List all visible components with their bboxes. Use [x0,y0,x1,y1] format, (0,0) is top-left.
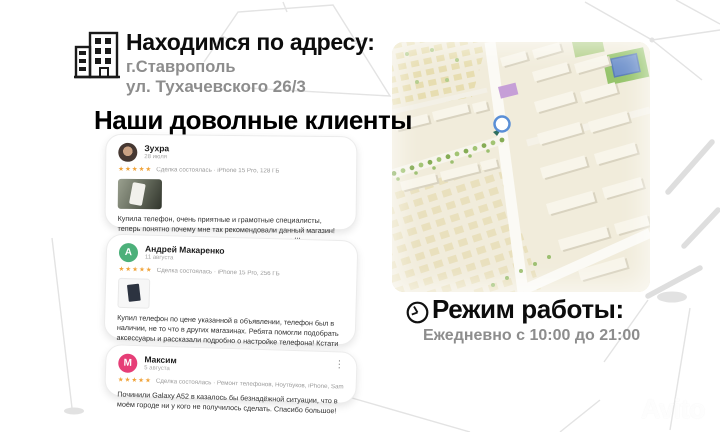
avatar: А [119,243,139,263]
clock-icon [406,301,429,324]
review-card-andrey[interactable]: А Андрей Макаренко 11 августа ★★★★★ Сдел… [104,234,359,346]
phone-box-shape [127,283,141,301]
review-card-zuhra[interactable]: Зухра 28 июля ★★★★★ Сделка состоялась · … [105,134,358,231]
deal-status: Сделка состоялась · iPhone 15 Pro, 128 Г… [156,167,279,174]
store-ad-banner: Находимся по адресу: г.Ставрополь ул. Ту… [0,0,720,432]
address-heading: Находимся по адресу: [126,30,375,55]
deal-status: Сделка состоялась · Ремонт телефонов, Но… [156,379,344,391]
reviews-heading: Наши доволные клиенты [94,105,412,136]
avito-watermark: Avito [604,392,705,426]
avatar: М [118,353,138,373]
location-map [392,42,650,292]
star-rating-icon: ★★★★★ [118,167,152,174]
address-city: г.Ставрополь [126,58,375,77]
star-rating-icon: ★★★★★ [118,377,152,385]
map-graphic [392,42,650,292]
avito-watermark-text: Avito [641,394,705,425]
review-card-maksim[interactable]: М Максим 5 августа ⋮ ★★★★★ Сделка состоя… [104,344,358,404]
star-rating-icon: ★★★★★ [118,267,152,274]
avito-logo-icon [604,392,638,426]
hours-schedule: Ежедневно с 10:00 до 21:00 [423,327,640,345]
phone-box-shape [129,182,146,206]
address-street: ул. Тухачевского 26/3 [126,77,375,97]
review-date: 28 июля [144,154,169,161]
reviewer-name: Зухра [144,144,169,154]
review-date: 5 августа [144,365,177,373]
map-marker-icon [495,117,510,132]
kebab-menu-icon[interactable]: ⋮ [334,360,344,370]
deal-status: Сделка состоялась · iPhone 15 Pro, 256 Г… [157,268,280,278]
address-block: Находимся по адресу: г.Ставрополь ул. Ту… [74,30,375,98]
building-icon [74,30,120,80]
hours-heading: Режим работы: [432,294,624,325]
avatar [118,143,137,162]
review-photo[interactable] [117,277,150,308]
review-photo[interactable] [118,178,162,208]
